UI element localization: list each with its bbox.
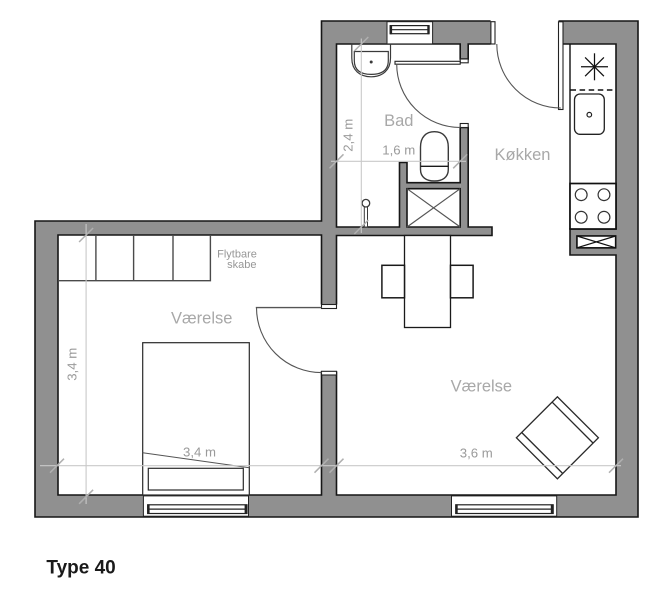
svg-text:Køkken: Køkken (495, 146, 551, 164)
svg-text:skabe: skabe (227, 259, 256, 271)
svg-text:1,6 m: 1,6 m (382, 142, 415, 157)
svg-text:Værelse: Værelse (171, 310, 232, 328)
svg-text:3,4 m: 3,4 m (65, 348, 80, 381)
svg-text:Værelse: Værelse (451, 378, 512, 396)
svg-text:3,6 m: 3,6 m (460, 446, 493, 461)
svg-text:3,4 m: 3,4 m (183, 444, 216, 459)
svg-text:Bad: Bad (384, 112, 413, 130)
svg-text:Type 40: Type 40 (46, 558, 115, 579)
svg-text:2,4 m: 2,4 m (340, 119, 355, 152)
